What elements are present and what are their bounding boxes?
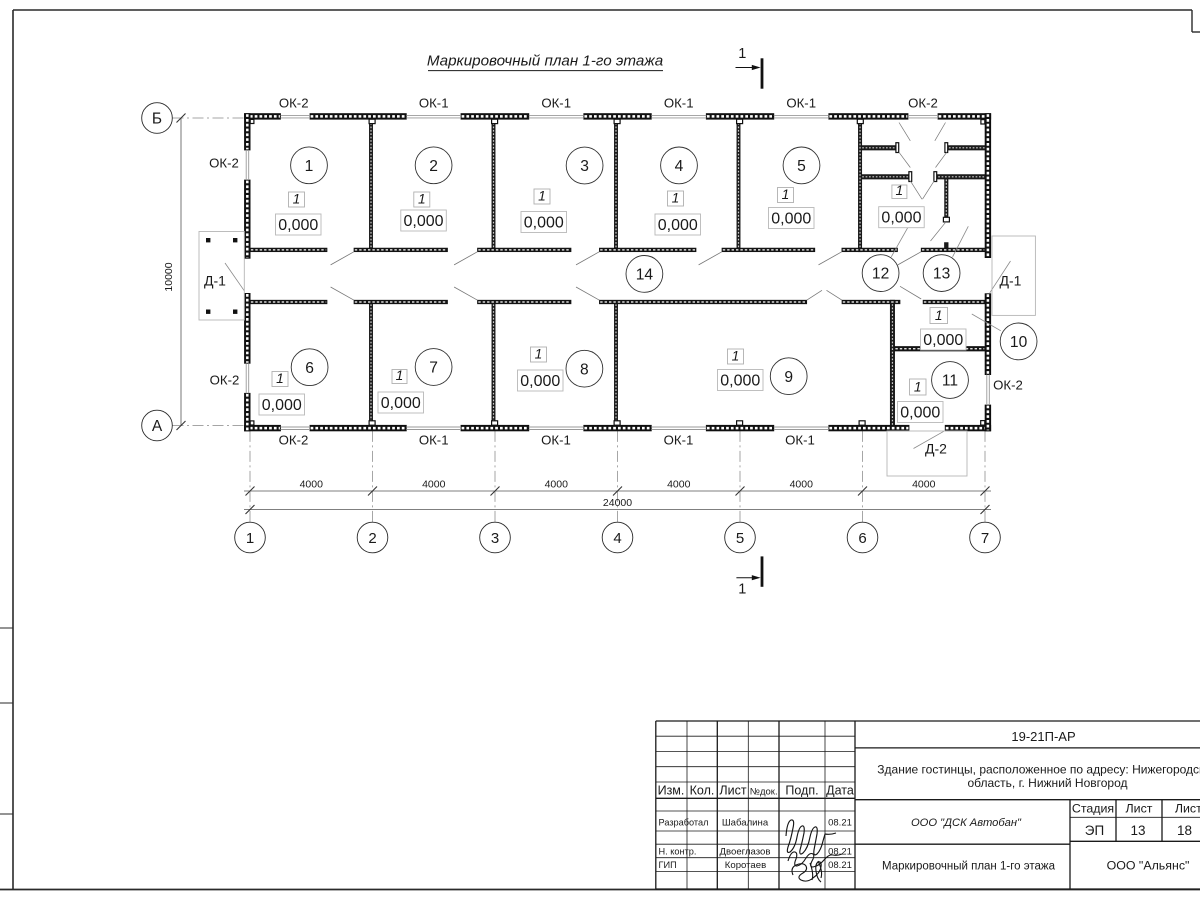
svg-text:Д-1: Д-1 (1000, 273, 1022, 289)
svg-text:12: 12 (872, 266, 889, 283)
svg-text:2: 2 (429, 158, 438, 175)
svg-text:Д-1: Д-1 (204, 273, 226, 289)
svg-text:Маркировочный план 1-го этажа: Маркировочный план 1-го этажа (882, 860, 1056, 872)
svg-text:Изм.: Изм. (658, 783, 685, 797)
svg-text:0,000: 0,000 (771, 211, 811, 228)
svg-text:1: 1 (782, 187, 790, 202)
svg-text:1: 1 (738, 582, 746, 598)
svg-text:0,000: 0,000 (900, 405, 940, 422)
svg-text:7: 7 (429, 360, 438, 377)
svg-text:4: 4 (675, 158, 684, 175)
svg-text:3: 3 (580, 158, 589, 175)
svg-text:ОК-1: ОК-1 (419, 433, 449, 448)
svg-text:08.21: 08.21 (828, 818, 852, 829)
svg-text:Подп.: Подп. (785, 783, 818, 797)
svg-text:8: 8 (580, 361, 589, 378)
svg-text:4000: 4000 (790, 478, 814, 490)
svg-text:4000: 4000 (667, 478, 691, 490)
svg-text:24000: 24000 (603, 497, 632, 509)
svg-text:ОК-1: ОК-1 (664, 433, 694, 448)
svg-text:6: 6 (305, 360, 314, 377)
svg-text:0,000: 0,000 (520, 373, 560, 390)
svg-text:ОК-1: ОК-1 (419, 95, 449, 110)
svg-text:Листов: Листов (1175, 802, 1200, 816)
svg-text:Лист: Лист (719, 783, 746, 797)
svg-text:ОК-1: ОК-1 (664, 95, 694, 110)
svg-text:1: 1 (914, 380, 922, 395)
svg-text:0,000: 0,000 (404, 213, 444, 230)
svg-text:1: 1 (305, 158, 314, 175)
svg-text:0,000: 0,000 (381, 395, 421, 412)
svg-text:1: 1 (935, 308, 943, 323)
svg-text:19-21П-АР: 19-21П-АР (1011, 729, 1075, 744)
svg-text:0,000: 0,000 (524, 215, 564, 232)
svg-text:4000: 4000 (300, 478, 324, 490)
svg-text:Маркировочный план 1-го этажа: Маркировочный план 1-го этажа (427, 52, 663, 69)
svg-text:1: 1 (246, 530, 254, 547)
svg-text:Дата: Дата (826, 783, 854, 797)
svg-text:ОК-2: ОК-2 (209, 156, 239, 171)
svg-text:13: 13 (1130, 823, 1145, 838)
svg-text:ОК-2: ОК-2 (279, 95, 309, 110)
svg-text:Двоеглазов: Двоеглазов (720, 847, 771, 858)
svg-text:ОК-2: ОК-2 (210, 372, 240, 387)
svg-text:Разработал: Разработал (659, 818, 709, 828)
svg-text:ООО "Альянс": ООО "Альянс" (1107, 858, 1190, 872)
svg-text:1: 1 (738, 46, 746, 62)
svg-text:ОК-2: ОК-2 (993, 377, 1023, 392)
svg-text:ОК-1: ОК-1 (541, 433, 571, 448)
svg-text:0,000: 0,000 (262, 397, 302, 414)
svg-text:0,000: 0,000 (881, 210, 921, 227)
svg-text:Б: Б (152, 111, 162, 128)
svg-text:1: 1 (732, 349, 740, 364)
svg-text:Н. контр.: Н. контр. (659, 847, 697, 857)
svg-text:9: 9 (784, 369, 793, 386)
svg-text:4: 4 (613, 530, 621, 547)
svg-text:1: 1 (538, 189, 546, 204)
svg-text:ООО "ДСК Автобан": ООО "ДСК Автобан" (911, 817, 1022, 829)
svg-text:0,000: 0,000 (658, 217, 698, 234)
svg-text:6: 6 (858, 530, 866, 547)
svg-text:0,000: 0,000 (278, 217, 318, 234)
svg-text:4000: 4000 (912, 478, 936, 490)
svg-text:Лист: Лист (1126, 802, 1153, 816)
svg-text:14: 14 (636, 267, 654, 284)
svg-text:5: 5 (797, 158, 806, 175)
svg-text:1: 1 (672, 191, 680, 206)
svg-text:область, г. Нижний Новгород: область, г. Нижний Новгород (967, 776, 1127, 790)
svg-text:0,000: 0,000 (923, 332, 963, 349)
svg-text:1: 1 (293, 192, 301, 207)
svg-text:ОК-2: ОК-2 (279, 433, 309, 448)
svg-text:7: 7 (981, 530, 989, 547)
svg-text:10: 10 (1010, 334, 1028, 351)
svg-text:ГИП: ГИП (659, 860, 677, 870)
svg-text:1: 1 (535, 347, 543, 362)
svg-text:1: 1 (396, 368, 404, 383)
svg-text:08.21: 08.21 (828, 860, 852, 871)
svg-text:1: 1 (896, 183, 904, 198)
svg-text:4000: 4000 (545, 478, 569, 490)
svg-text:Д-2: Д-2 (925, 441, 947, 457)
svg-text:08.21: 08.21 (828, 847, 852, 858)
svg-text:Кол.: Кол. (690, 783, 715, 797)
svg-text:Стадия: Стадия (1072, 802, 1114, 816)
svg-text:1: 1 (418, 192, 426, 207)
svg-text:3: 3 (491, 530, 499, 547)
svg-text:ОК-1: ОК-1 (541, 95, 571, 110)
svg-text:11: 11 (942, 373, 958, 390)
svg-text:0,000: 0,000 (720, 373, 760, 390)
svg-text:Здание гостинцы, расположенное: Здание гостинцы, расположенное по адресу… (877, 763, 1200, 777)
svg-text:4000: 4000 (422, 478, 446, 490)
svg-text:2: 2 (368, 530, 376, 547)
svg-text:Шабалина: Шабалина (722, 818, 769, 829)
svg-text:А: А (152, 418, 163, 435)
svg-text:18: 18 (1177, 823, 1192, 838)
svg-text:ОК-2: ОК-2 (908, 95, 938, 110)
svg-text:ОК-1: ОК-1 (785, 433, 815, 448)
svg-text:ОК-1: ОК-1 (786, 95, 816, 110)
svg-text:10000: 10000 (163, 262, 175, 291)
svg-text:№док.: №док. (750, 786, 778, 797)
svg-text:ЭП: ЭП (1085, 823, 1104, 838)
svg-text:1: 1 (276, 371, 284, 386)
svg-text:5: 5 (736, 530, 744, 547)
svg-text:13: 13 (933, 266, 950, 283)
svg-text:Коротаев: Коротаев (725, 860, 766, 871)
